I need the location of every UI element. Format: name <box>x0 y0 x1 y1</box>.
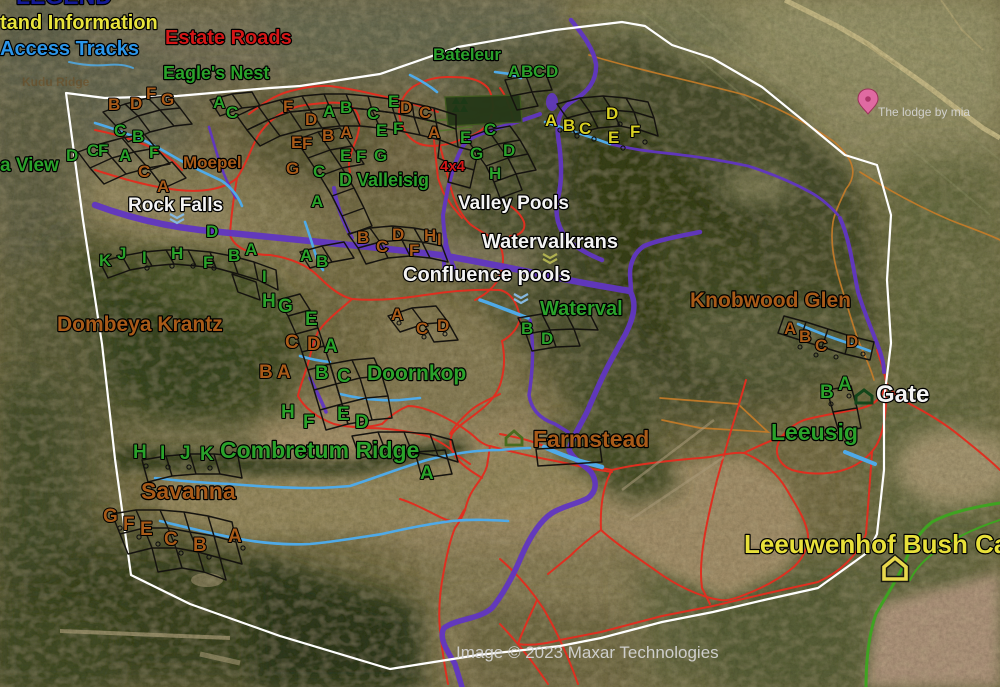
svg-text:A: A <box>391 305 403 324</box>
svg-text:A: A <box>277 362 291 383</box>
svg-text:B: B <box>820 382 834 403</box>
svg-text:E: E <box>337 404 350 425</box>
svg-text:D: D <box>206 222 218 241</box>
svg-text:E: E <box>340 146 351 165</box>
svg-text:A: A <box>213 93 225 112</box>
svg-text:G: G <box>161 90 174 109</box>
svg-text:D: D <box>546 62 558 81</box>
svg-text:Watervalkrans: Watervalkrans <box>482 231 618 253</box>
svg-text:C: C <box>226 103 238 122</box>
svg-text:A: A <box>340 123 352 142</box>
svg-text:Kudu Ridge: Kudu Ridge <box>22 75 90 89</box>
svg-text:F: F <box>409 241 419 260</box>
svg-text:Leeuwenhof Bush Cam: Leeuwenhof Bush Cam <box>744 529 1000 559</box>
svg-text:F: F <box>393 119 403 138</box>
svg-text:A: A <box>323 102 335 121</box>
svg-text:B: B <box>259 362 273 383</box>
svg-text:K: K <box>200 444 214 465</box>
svg-text:D: D <box>541 329 553 348</box>
svg-text:C: C <box>484 120 496 139</box>
svg-text:A: A <box>545 111 557 130</box>
svg-text:Waterval: Waterval <box>540 298 623 320</box>
svg-text:Moepel: Moepel <box>183 153 242 172</box>
svg-text:Bateleur: Bateleur <box>433 45 501 64</box>
svg-text:G: G <box>278 296 293 317</box>
svg-text:H: H <box>489 164 501 183</box>
svg-text:A: A <box>324 336 338 357</box>
svg-text:J: J <box>117 244 126 263</box>
svg-text:B: B <box>322 126 334 145</box>
svg-text:A: A <box>157 177 169 196</box>
svg-text:H: H <box>171 244 183 263</box>
svg-text:C: C <box>285 332 299 353</box>
svg-text:F: F <box>630 122 640 141</box>
svg-text:Dombeya Krantz: Dombeya Krantz <box>57 313 223 336</box>
svg-text:F: F <box>149 143 159 162</box>
svg-text:C: C <box>419 103 431 122</box>
svg-text:a View: a View <box>0 155 59 176</box>
svg-text:G: G <box>374 146 387 165</box>
svg-text:C: C <box>416 319 428 338</box>
svg-text:Confluence pools: Confluence pools <box>403 264 571 286</box>
svg-text:G: G <box>103 506 118 527</box>
svg-text:A: A <box>420 463 434 484</box>
svg-text:B: B <box>193 535 207 556</box>
svg-text:C: C <box>376 237 388 256</box>
svg-text:A: A <box>245 240 257 259</box>
svg-text:G: G <box>286 159 299 178</box>
svg-text:I: I <box>160 443 165 464</box>
svg-text:D: D <box>437 316 449 335</box>
svg-text:tand Information: tand Information <box>0 12 158 34</box>
svg-text:Rock Falls: Rock Falls <box>128 195 223 216</box>
svg-text:K: K <box>99 251 112 270</box>
svg-text:A: A <box>311 192 323 211</box>
svg-text:D: D <box>355 412 369 433</box>
svg-text:C: C <box>815 336 827 355</box>
svg-text:F: F <box>302 134 312 153</box>
svg-text:C: C <box>313 162 325 181</box>
svg-text:D: D <box>130 94 142 113</box>
svg-text:A: A <box>508 62 520 81</box>
svg-text:Farmstead: Farmstead <box>533 426 649 452</box>
svg-text:F: F <box>146 84 156 103</box>
svg-text:Savanna: Savanna <box>141 478 236 504</box>
svg-text:D: D <box>606 104 618 123</box>
svg-text:D: D <box>503 141 515 160</box>
svg-text:A: A <box>428 123 440 142</box>
svg-text:B: B <box>315 363 329 384</box>
svg-text:B: B <box>316 252 328 271</box>
svg-text:D: D <box>305 110 317 129</box>
svg-text:B: B <box>108 95 120 114</box>
svg-text:Access Tracks: Access Tracks <box>0 38 139 60</box>
svg-text:B: B <box>228 246 240 265</box>
svg-text:LEGEND: LEGEND <box>16 0 112 9</box>
svg-text:B: B <box>132 127 144 146</box>
svg-text:D: D <box>66 146 78 165</box>
svg-text:C: C <box>533 62 545 81</box>
svg-text:C: C <box>114 121 126 140</box>
svg-text:I: I <box>142 248 147 267</box>
svg-text:B: B <box>340 98 352 117</box>
svg-text:J: J <box>180 443 191 464</box>
svg-text:F: F <box>98 141 108 160</box>
svg-text:I: I <box>437 230 442 249</box>
svg-text:The lodge by mia: The lodge by mia <box>878 105 970 119</box>
svg-text:A: A <box>838 374 852 395</box>
svg-text:Estate Roads: Estate Roads <box>165 27 292 49</box>
svg-text:B: B <box>563 116 575 135</box>
svg-text:B: B <box>799 327 811 346</box>
svg-text:H: H <box>424 226 436 245</box>
svg-text:D Valleisig: D Valleisig <box>339 170 429 190</box>
svg-text:B: B <box>521 62 533 81</box>
svg-text:Image © 2023 Maxar Technologie: Image © 2023 Maxar Technologies <box>456 643 719 662</box>
svg-text:D: D <box>392 225 404 244</box>
svg-text:C: C <box>579 119 591 138</box>
svg-text:Valley Pools: Valley Pools <box>458 193 569 214</box>
svg-text:F: F <box>356 147 366 166</box>
svg-text:4x4: 4x4 <box>440 158 466 175</box>
svg-text:D: D <box>846 332 858 351</box>
svg-text:C: C <box>337 366 351 387</box>
svg-text:A: A <box>300 246 312 265</box>
svg-text:H: H <box>133 442 147 463</box>
svg-text:Eagle's Nest: Eagle's Nest <box>163 63 269 83</box>
svg-text:Gate: Gate <box>876 381 929 408</box>
svg-text:C: C <box>138 162 150 181</box>
svg-text:F: F <box>123 514 135 535</box>
svg-text:Combretum Ridge: Combretum Ridge <box>220 437 419 463</box>
svg-text:E: E <box>388 92 399 111</box>
svg-text:Doornkop: Doornkop <box>367 362 466 385</box>
svg-text:D: D <box>400 98 412 117</box>
svg-text:H: H <box>262 291 276 312</box>
svg-text:C: C <box>164 529 178 550</box>
svg-text:H: H <box>281 402 295 423</box>
svg-text:F: F <box>283 97 293 116</box>
svg-text:A: A <box>228 526 242 547</box>
svg-text:B: B <box>521 319 533 338</box>
svg-text:Knobwood Glen: Knobwood Glen <box>690 289 851 312</box>
svg-text:D: D <box>307 334 321 355</box>
svg-text:E: E <box>291 133 302 152</box>
svg-text:B: B <box>357 228 369 247</box>
svg-text:A: A <box>784 319 796 338</box>
svg-text:I: I <box>262 267 267 286</box>
svg-text:F: F <box>303 412 315 433</box>
svg-text:E: E <box>140 519 153 540</box>
svg-text:E: E <box>608 128 619 147</box>
svg-text:G: G <box>470 144 483 163</box>
svg-text:E: E <box>376 121 387 140</box>
svg-text:Leeusig: Leeusig <box>771 419 858 445</box>
svg-text:E: E <box>305 309 318 330</box>
svg-text:A: A <box>119 146 131 165</box>
